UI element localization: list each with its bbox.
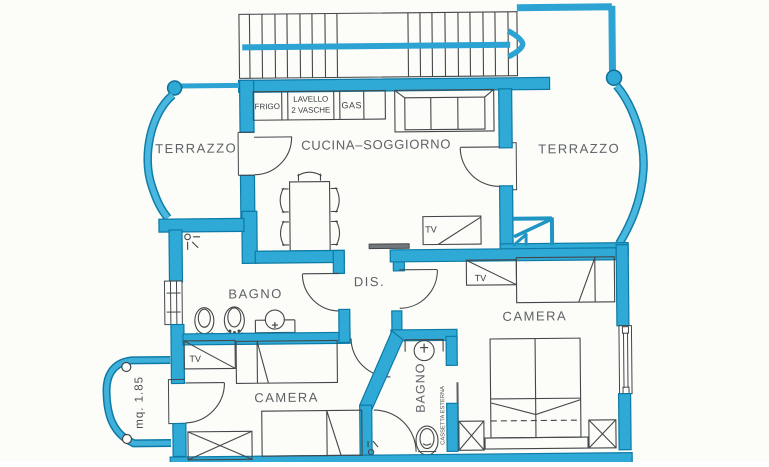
svg-text:LAVELLO: LAVELLO — [293, 95, 328, 104]
svg-text:CAMERA: CAMERA — [502, 308, 567, 324]
svg-text:BAGNO: BAGNO — [413, 363, 427, 413]
svg-text:FRIGO: FRIGO — [255, 102, 280, 111]
svg-text:TV: TV — [189, 354, 201, 364]
svg-text:2 VASCHE: 2 VASCHE — [291, 106, 330, 115]
svg-text:TERRAZZO: TERRAZZO — [155, 140, 237, 156]
svg-text:TV: TV — [475, 273, 487, 283]
svg-text:BAGNO: BAGNO — [228, 286, 283, 302]
svg-text:CUCINA–SOGGIORNO: CUCINA–SOGGIORNO — [301, 136, 451, 152]
svg-text:DIS.: DIS. — [354, 274, 385, 289]
svg-text:TV: TV — [425, 224, 437, 234]
svg-text:CASSETTA ESTERNA: CASSETTA ESTERNA — [440, 386, 447, 445]
svg-text:mq. 1.85: mq. 1.85 — [133, 376, 146, 429]
svg-text:CAMERA: CAMERA — [254, 390, 319, 406]
svg-text:TERRAZZO: TERRAZZO — [538, 141, 620, 157]
svg-text:GAS: GAS — [341, 100, 362, 110]
